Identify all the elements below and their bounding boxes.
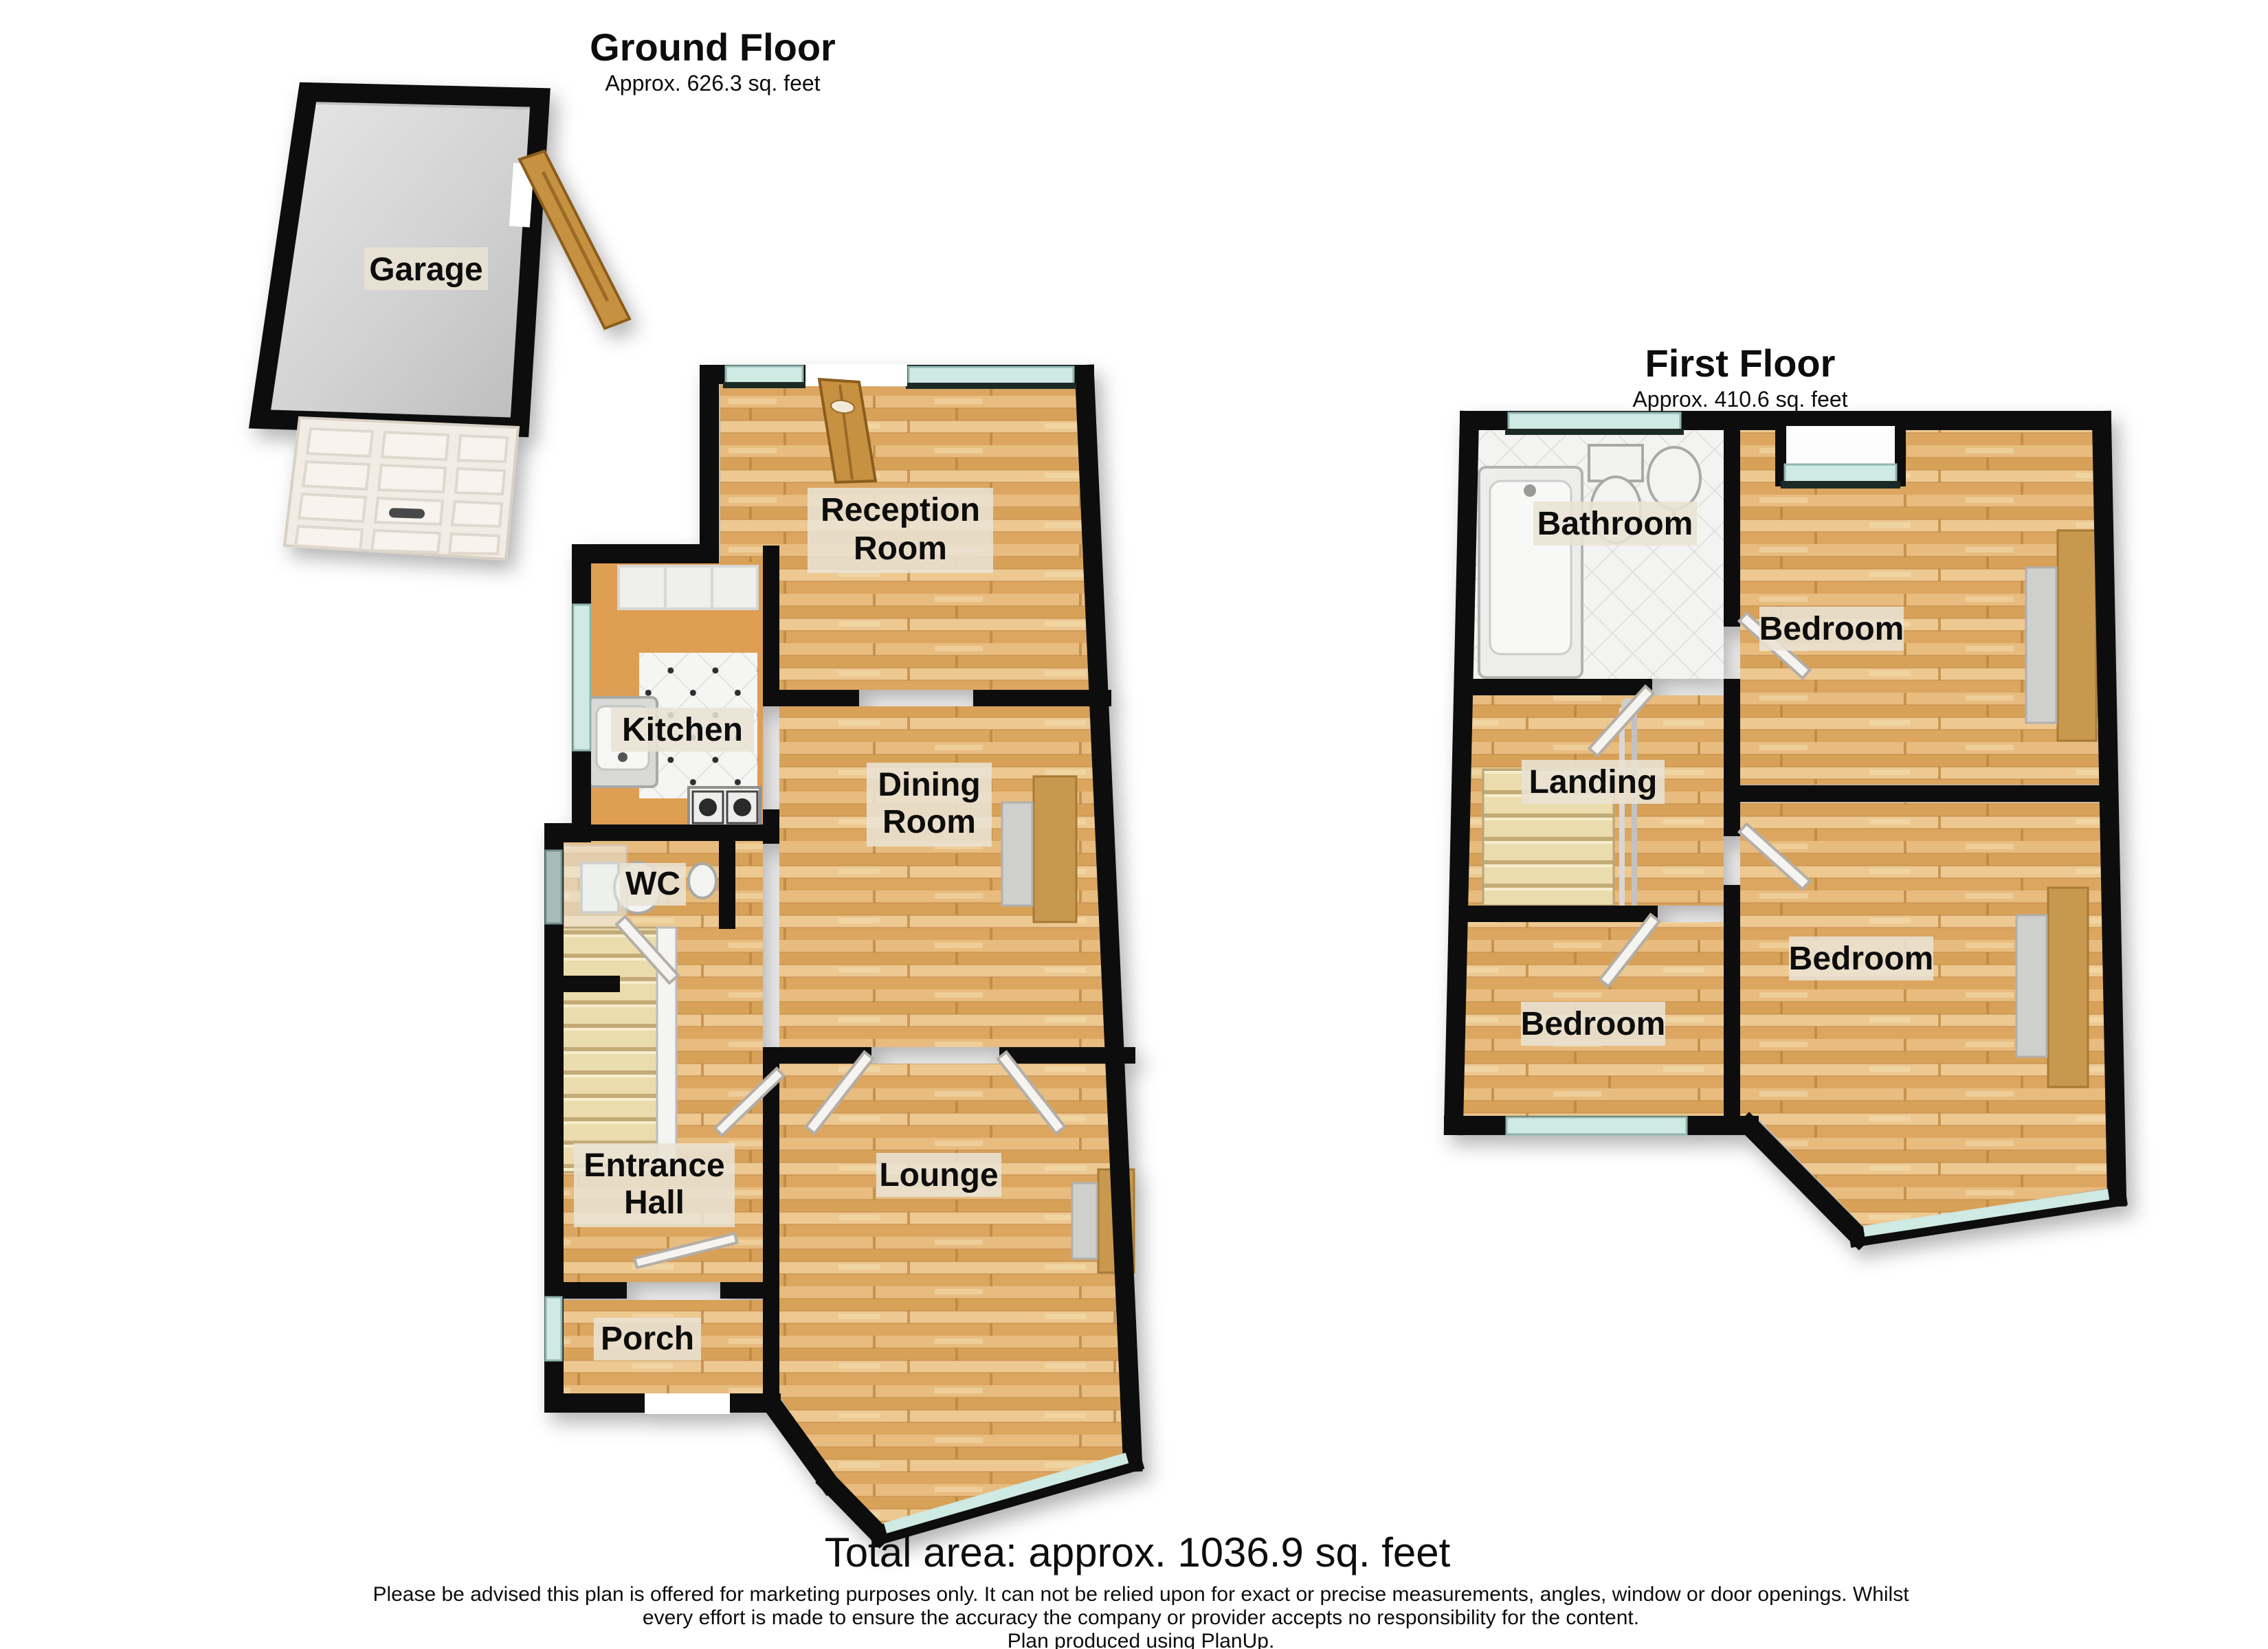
ground-floor-title: Ground Floor <box>590 25 836 69</box>
ground-floor-header: Ground Floor Approx. 626.3 sq. feet <box>590 25 836 96</box>
bathroom-sink <box>1648 447 1700 509</box>
wc-sink <box>689 864 716 898</box>
lounge-sideboard-top <box>1072 1183 1097 1259</box>
porch-label: Porch <box>601 1321 694 1357</box>
first-floor-title: First Floor <box>1645 341 1836 385</box>
total-area-text: Total area: approx. 1036.9 sq. feet <box>825 1529 1451 1575</box>
garage-label: Garage <box>364 247 488 290</box>
garage-side-door-line <box>543 172 608 301</box>
bedroom-left-window <box>1507 1117 1687 1134</box>
bedroom-right-desk-top <box>2016 915 2047 1057</box>
first-floor-subtitle: Approx. 410.6 sq. feet <box>1632 387 1847 412</box>
garage-door-handle <box>389 508 425 519</box>
garage-door <box>285 418 518 559</box>
ground-floor-subtitle: Approx. 626.3 sq. feet <box>605 71 820 96</box>
porch-entry-opening <box>645 1393 730 1414</box>
ground-floor-plan: Reception Room Kitchen Dining Room WC En… <box>546 364 1134 1535</box>
kitchen-label: Kitchen <box>622 712 743 748</box>
entrance-label-line2: Hall <box>624 1185 685 1221</box>
bedroom-top-label: Bedroom <box>1759 611 1904 647</box>
garage-label-text: Garage <box>369 251 482 288</box>
reception-label-line1: Reception <box>821 492 980 528</box>
bedroom-right-label: Bedroom <box>1789 941 1934 977</box>
reception-window-right <box>909 367 1074 384</box>
garage-plan: Garage <box>260 92 630 559</box>
bedroom-top-desk-top <box>2026 568 2056 723</box>
stairs-window <box>546 851 562 923</box>
kitchen-window <box>573 605 590 750</box>
dining-sideboard <box>1034 776 1076 922</box>
bedroom-top-window-recess <box>1786 426 1895 467</box>
bedroom-top-desk <box>2058 530 2096 741</box>
landing-label: Landing <box>1529 764 1658 800</box>
lounge-floor <box>779 1064 1127 1527</box>
lounge-label: Lounge <box>879 1157 998 1193</box>
disclaimer-line3: Plan produced using PlanUp. <box>1008 1630 1275 1649</box>
reception-label-line2: Room <box>854 530 947 567</box>
reception-window-left <box>726 366 803 383</box>
floorplan-canvas: Ground Floor Approx. 626.3 sq. feet Firs… <box>0 0 2268 1649</box>
stove <box>689 787 760 827</box>
bedroom-top-window <box>1785 464 1896 482</box>
entrance-label-line1: Entrance <box>583 1147 724 1184</box>
dining-label-line1: Dining <box>878 767 980 803</box>
bathroom-label: Bathroom <box>1537 506 1693 542</box>
dining-label-line2: Room <box>882 804 976 840</box>
first-floor-plan: Bathroom Bedroom Landing Bedroom Bedroom <box>1454 413 2117 1237</box>
wc-label: WC <box>625 866 680 902</box>
bathroom-window <box>1509 413 1680 430</box>
dining-sideboard-top <box>1002 803 1032 906</box>
bath-tap <box>1524 484 1536 497</box>
first-floor-header: First Floor Approx. 410.6 sq. feet <box>1632 341 1847 412</box>
porch-window <box>546 1297 562 1360</box>
bedroom-right-desk <box>2048 888 2088 1087</box>
disclaimer-line1: Please be advised this plan is offered f… <box>373 1583 1909 1606</box>
footer: Total area: approx. 1036.9 sq. feet Plea… <box>373 1529 1909 1649</box>
bedroom-left-label: Bedroom <box>1521 1006 1666 1042</box>
glass-partition <box>564 845 627 929</box>
kitchen-cabinets <box>619 566 757 609</box>
disclaimer-line2: every effort is made to ensure the accur… <box>643 1606 1639 1629</box>
